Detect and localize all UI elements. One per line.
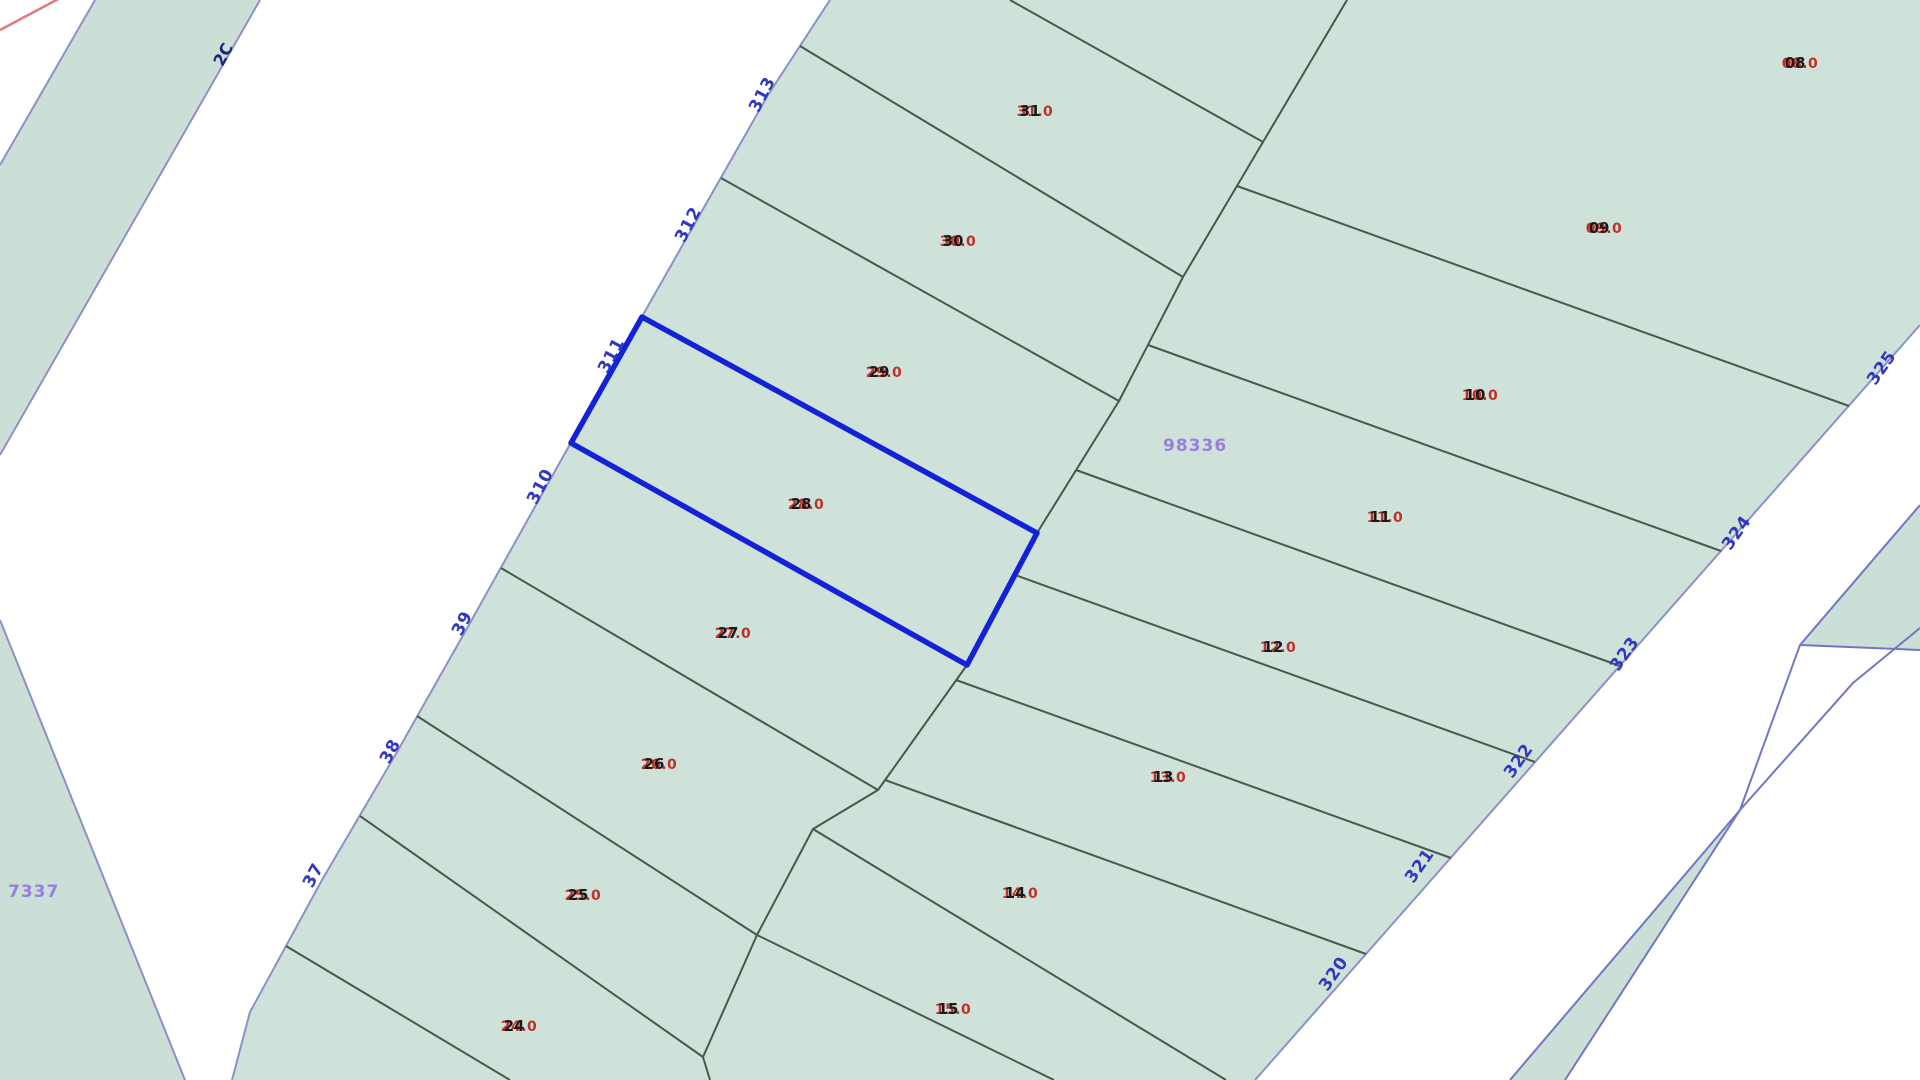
parcel-label-11: 11.011 [1367,508,1404,526]
map-viewport[interactable]: 3133123113103938373253243233223213202C31… [0,0,1920,1080]
boundary-red-line [0,0,64,30]
road-edge-line [1740,628,1920,810]
svg-text:25: 25 [568,886,589,904]
svg-text:31: 31 [1020,102,1041,120]
svg-text:28: 28 [791,495,812,513]
road-edge-line [1565,810,1740,1080]
svg-text:15: 15 [938,1000,959,1018]
zone-label-98336: 98336 [1163,436,1227,456]
svg-text:30: 30 [943,232,964,250]
svg-text:13: 13 [1153,768,1174,786]
parcel-label-24: 24.024 [501,1017,538,1035]
parcel-label-12: 12.012 [1260,638,1297,656]
parcel-label-28: 28.028 [788,495,825,513]
svg-text:09: 09 [1589,219,1610,237]
parcel-label-15: 15.015 [935,1000,972,1018]
parcel-label-09: 09.009 [1586,219,1623,237]
svg-text:14: 14 [1005,884,1026,902]
svg-text:12: 12 [1263,638,1284,656]
parcel-label-29: 29.029 [866,363,903,381]
svg-text:10: 10 [1465,386,1486,404]
svg-text:29: 29 [869,363,890,381]
parcel-label-31: 31.031 [1017,102,1054,120]
svg-text:24: 24 [504,1017,525,1035]
parcel-label-30: 30.030 [940,232,977,250]
parcel-label-10: 10.010 [1462,386,1499,404]
parcel-label-26: 26.026 [641,755,678,773]
parcel-label-25: 25.025 [565,886,602,904]
svg-text:27: 27 [718,624,739,642]
svg-text:26: 26 [644,755,665,773]
road-edge-line [1510,810,1740,1080]
parcel-label-13: 13.013 [1150,768,1187,786]
parcel-label-14: 14.014 [1002,884,1039,902]
zone-label-7337: 7337 [8,882,59,902]
parcel-label-08: 08.008 [1782,54,1819,72]
svg-text:11: 11 [1370,508,1391,526]
svg-text:08: 08 [1785,54,1806,72]
cadastral-map[interactable]: 3133123113103938373253243233223213202C31… [0,0,1920,1080]
parcel-label-27: 27.027 [715,624,752,642]
